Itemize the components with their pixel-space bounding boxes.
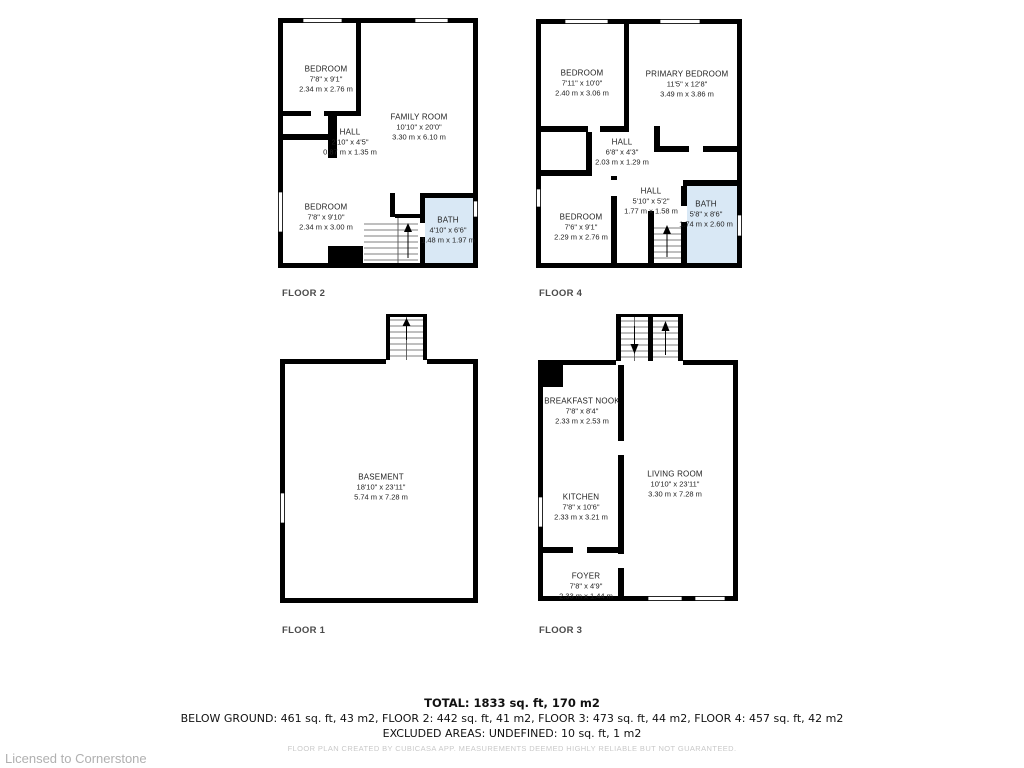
room-dim-imperial: 7'11" x 10'0" [555, 79, 609, 88]
room-label: BREAKFAST NOOK 7'8" x 8'4" 2.33 m x 2.53… [544, 397, 620, 426]
room-name: HALL [323, 128, 377, 137]
room-name: BEDROOM [554, 213, 608, 222]
room-label: HALL 5'10" x 5'2" 1.77 m x 1.58 m [624, 187, 678, 216]
room-dim-imperial: 7'8" x 9'10" [299, 213, 353, 222]
summary-excluded-areas: EXCLUDED AREAS: UNDEFINED: 10 sq. ft, 1 … [0, 727, 1024, 740]
windows [281, 493, 285, 523]
room-label: PRIMARY BEDROOM 11'5" x 12'8" 3.49 m x 3… [646, 70, 729, 99]
room-dim-metric: 2.33 m x 2.53 m [544, 417, 620, 426]
floor-plan-sheet: BEDROOM 7'8" x 9'1" 2.34 m x 2.76 m FAMI… [0, 0, 1024, 768]
stairs-icon [654, 225, 681, 258]
summary-floor-areas: BELOW GROUND: 461 sq. ft, 43 m2, FLOOR 2… [0, 712, 1024, 725]
room-dim-metric: 2.03 m x 1.29 m [595, 158, 649, 167]
floorplan-floor-3: BREAKFAST NOOK 7'8" x 8'4" 2.33 m x 2.53… [538, 314, 738, 601]
area-summary: TOTAL: 1833 sq. ft, 170 m2 BELOW GROUND:… [0, 696, 1024, 740]
room-dim-metric: 3.30 m x 7.28 m [647, 490, 703, 499]
room-dim-imperial: 7'6" x 9'1" [554, 223, 608, 232]
room-dim-metric: 3.30 m x 6.10 m [390, 133, 447, 142]
room-dim-metric: 2.33 m x 1.44 m [559, 592, 613, 601]
room-name: FAMILY ROOM [390, 113, 447, 122]
room-dim-metric: 1.74 m x 2.60 m [679, 220, 733, 229]
floorplan-floor-3-drawing [538, 314, 738, 601]
stairs-icon [390, 317, 423, 360]
room-label: FAMILY ROOM 10'10" x 20'0" 3.30 m x 6.10… [390, 113, 447, 142]
room-label: HALL 6'8" x 4'3" 2.03 m x 1.29 m [595, 138, 649, 167]
room-dim-imperial: 7'8" x 4'9" [559, 582, 613, 591]
room-dim-metric: 5.74 m x 7.28 m [354, 493, 408, 502]
room-dim-imperial: 10'10" x 23'11" [647, 480, 703, 489]
room-label: KITCHEN 7'8" x 10'6" 2.33 m x 3.21 m [554, 493, 608, 522]
floor-1-caption: FLOOR 1 [282, 625, 325, 636]
stairs-icon [364, 218, 418, 263]
room-name: BEDROOM [299, 65, 353, 74]
room-dim-imperial: 18'10" x 23'11" [354, 483, 408, 492]
room-dim-metric: 2.40 m x 3.06 m [555, 89, 609, 98]
room-dim-imperial: 4'10" x 6'6" [421, 226, 475, 235]
room-dim-metric: 1.48 m x 1.97 m [421, 236, 475, 245]
room-dim-metric: 2.33 m x 3.21 m [554, 513, 608, 522]
room-dim-imperial: 10'10" x 20'0" [390, 123, 447, 132]
floor-2-caption: FLOOR 2 [282, 288, 325, 299]
room-name: BATH [421, 216, 475, 225]
room-dim-imperial: 5'8" x 8'6" [679, 210, 733, 219]
floor-4-caption: FLOOR 4 [539, 288, 582, 299]
floorplan-floor-4: BEDROOM 7'11" x 10'0" 2.40 m x 3.06 m PR… [536, 19, 742, 268]
room-label: BEDROOM 7'8" x 9'10" 2.34 m x 3.00 m [299, 203, 353, 232]
room-name: PRIMARY BEDROOM [646, 70, 729, 79]
room-dim-imperial: 7'8" x 8'4" [544, 407, 620, 416]
room-dim-imperial: 11'5" x 12'8" [646, 80, 729, 89]
room-dim-metric: 2.34 m x 2.76 m [299, 85, 353, 94]
room-name: LIVING ROOM [647, 470, 703, 479]
disclaimer-text: FLOOR PLAN CREATED BY CUBICASA APP. MEAS… [0, 744, 1024, 753]
room-dim-imperial: 7'8" x 9'1" [299, 75, 353, 84]
room-name: BASEMENT [354, 473, 408, 482]
room-dim-metric: 3.49 m x 3.86 m [646, 90, 729, 99]
room-name: BATH [679, 200, 733, 209]
room-name: BEDROOM [555, 69, 609, 78]
walls [280, 314, 478, 603]
room-name: BREAKFAST NOOK [544, 397, 620, 406]
room-label: BEDROOM 7'11" x 10'0" 2.40 m x 3.06 m [555, 69, 609, 98]
floor-3-caption: FLOOR 3 [539, 625, 582, 636]
room-label: BEDROOM 7'8" x 9'1" 2.34 m x 2.76 m [299, 65, 353, 94]
room-label: HALL 2'10" x 4'5" 0.87 m x 1.35 m [323, 128, 377, 157]
room-label: LIVING ROOM 10'10" x 23'11" 3.30 m x 7.2… [647, 470, 703, 499]
floorplan-floor-1-drawing [280, 314, 478, 603]
room-dim-metric: 0.87 m x 1.35 m [323, 148, 377, 157]
closet-area [543, 365, 563, 387]
room-label: BATH 4'10" x 6'6" 1.48 m x 1.97 m [421, 216, 475, 245]
room-name: FOYER [559, 572, 613, 581]
room-dim-imperial: 6'8" x 4'3" [595, 148, 649, 157]
room-dim-metric: 1.77 m x 1.58 m [624, 207, 678, 216]
room-label: BATH 5'8" x 8'6" 1.74 m x 2.60 m [679, 200, 733, 229]
room-label: BASEMENT 18'10" x 23'11" 5.74 m x 7.28 m [354, 473, 408, 502]
room-name: HALL [595, 138, 649, 147]
floorplan-floor-1: BASEMENT 18'10" x 23'11" 5.74 m x 7.28 m [280, 314, 478, 603]
room-dim-imperial: 2'10" x 4'5" [323, 138, 377, 147]
closet-area [328, 246, 363, 263]
room-label: FOYER 7'8" x 4'9" 2.33 m x 1.44 m [559, 572, 613, 601]
floorplan-floor-2: BEDROOM 7'8" x 9'1" 2.34 m x 2.76 m FAMI… [278, 18, 478, 268]
room-label: BEDROOM 7'6" x 9'1" 2.29 m x 2.76 m [554, 213, 608, 242]
room-dim-imperial: 7'8" x 10'6" [554, 503, 608, 512]
summary-total: TOTAL: 1833 sq. ft, 170 m2 [0, 696, 1024, 710]
license-text: Licensed to Cornerstone [5, 751, 147, 766]
room-dim-metric: 2.29 m x 2.76 m [554, 233, 608, 242]
room-name: HALL [624, 187, 678, 196]
room-dim-imperial: 5'10" x 5'2" [624, 197, 678, 206]
room-name: BEDROOM [299, 203, 353, 212]
room-dim-metric: 2.34 m x 3.00 m [299, 223, 353, 232]
room-name: KITCHEN [554, 493, 608, 502]
